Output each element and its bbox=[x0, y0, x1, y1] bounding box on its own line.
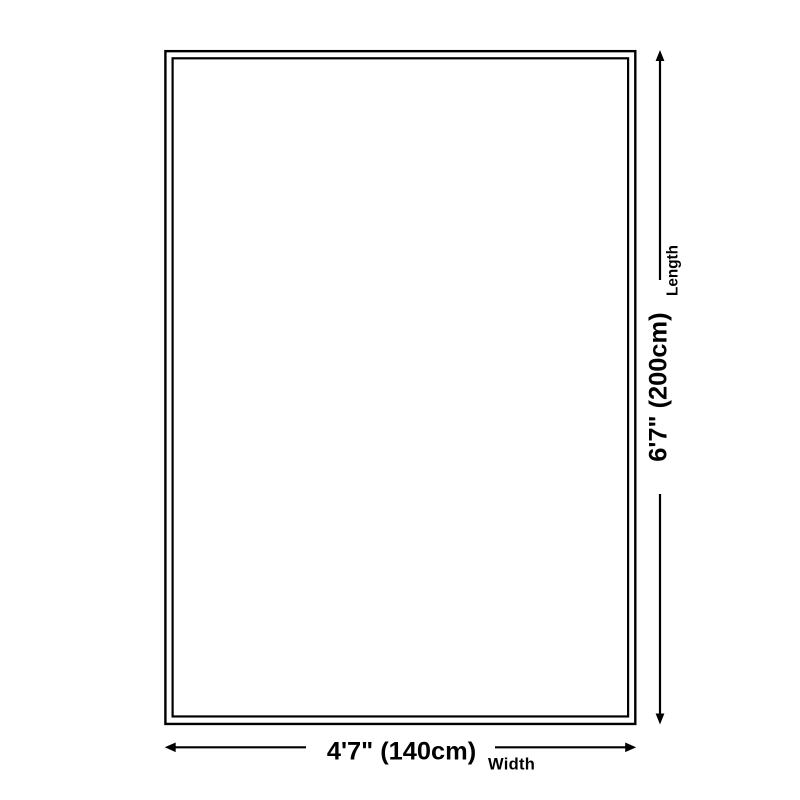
svg-text:6'7" (200cm): 6'7" (200cm) bbox=[644, 312, 672, 461]
svg-text:4'7" (140cm): 4'7" (140cm) bbox=[327, 737, 476, 765]
svg-text:Width: Width bbox=[488, 756, 535, 774]
svg-text:Length: Length bbox=[665, 245, 682, 296]
